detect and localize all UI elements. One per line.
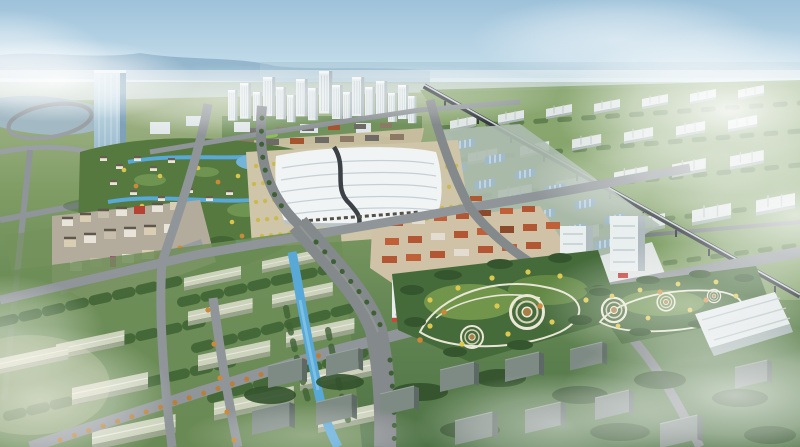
lawn <box>424 284 516 320</box>
factory-office <box>470 196 482 201</box>
scene-canvas <box>0 0 800 447</box>
aerial-cityscape-rendering <box>0 0 800 447</box>
cloud <box>530 130 770 230</box>
